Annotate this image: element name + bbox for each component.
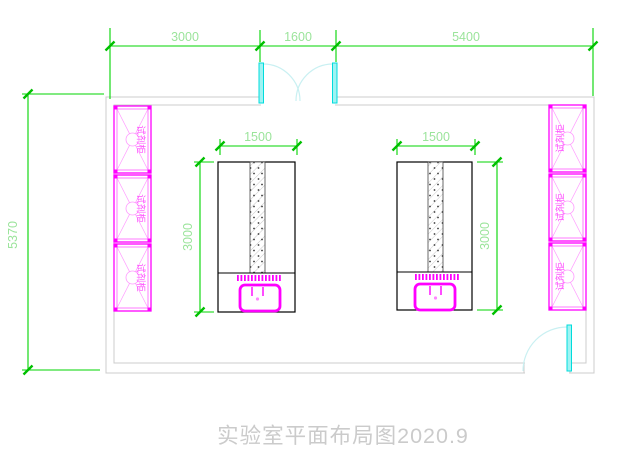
dim-label-bench2-depth: 3000 (478, 222, 492, 250)
lab-bench-2 (397, 162, 472, 310)
top-door-opening (261, 95, 335, 107)
cabinet-column-left: 试剂柜 试剂柜 试剂柜 (114, 106, 152, 312)
room-walls (106, 97, 594, 373)
reagent-cabinet: 试剂柜 (549, 174, 587, 242)
dim-label-bench2-width: 1500 (422, 130, 450, 144)
sink-drain (256, 297, 259, 300)
dimension-lines (22, 28, 593, 370)
cabinet-label: 试剂柜 (555, 262, 567, 291)
dim-label-top-left: 3000 (171, 30, 199, 44)
door-leaf-left (259, 63, 264, 103)
cabinet-label: 试剂柜 (555, 193, 567, 222)
wall-outer-line (106, 97, 594, 373)
dim-label-bench1-width: 1500 (244, 130, 272, 144)
reagent-cabinet: 试剂柜 (549, 243, 587, 311)
sink-drain (434, 296, 437, 299)
cabinet-label: 试剂柜 (134, 125, 146, 154)
bottom-door-opening (525, 360, 569, 375)
dim-label-bench1-depth: 3000 (181, 223, 195, 251)
lab-bench-1 (218, 162, 295, 312)
cabinet-column-right: 试剂柜 试剂柜 试剂柜 (549, 105, 587, 311)
dim-label-room-height: 5370 (6, 221, 20, 249)
reagent-cabinet: 试剂柜 (549, 105, 587, 173)
door-leaf-right (333, 63, 338, 103)
floorplan-drawing: 试剂柜 试剂柜 试剂柜 (0, 0, 619, 469)
dim-label-top-middle: 1600 (284, 30, 312, 44)
cabinet-label: 试剂柜 (134, 263, 146, 292)
drawing-title: 实验室平面布局图2020.9 (217, 424, 469, 448)
cabinet-label: 试剂柜 (134, 194, 146, 223)
reagent-cabinet: 试剂柜 (114, 106, 152, 174)
cabinet-label: 试剂柜 (555, 124, 567, 153)
reagent-cabinet: 试剂柜 (114, 175, 152, 243)
door-leaf (567, 325, 572, 371)
floorplan-canvas: 试剂柜 试剂柜 试剂柜 (0, 0, 619, 469)
reagent-cabinet: 试剂柜 (114, 244, 152, 312)
dim-label-top-right: 5400 (452, 30, 480, 44)
